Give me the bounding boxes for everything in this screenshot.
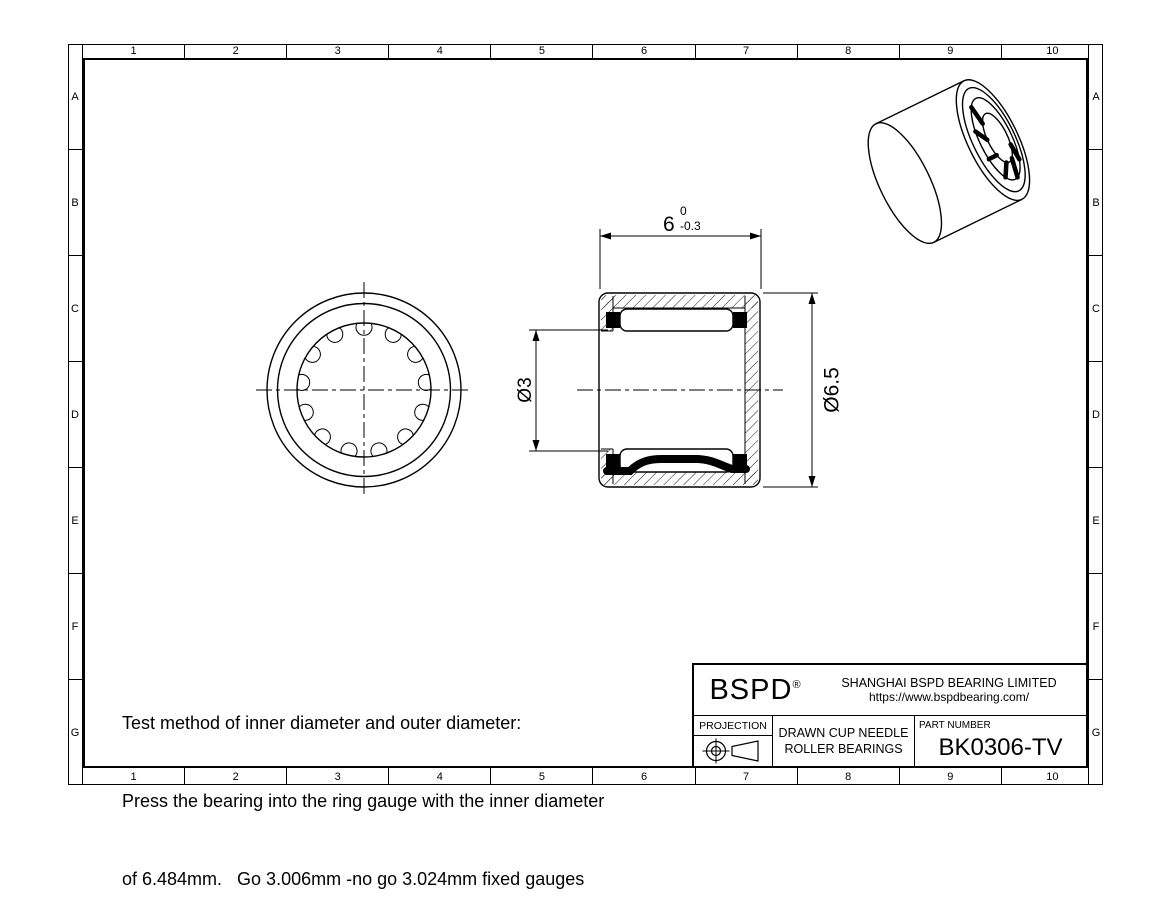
product-line: DRAWN CUP NEEDLE [779,725,909,741]
outer-diameter-value: Ø6.5 [821,367,844,413]
note-line: of 6.484mm. Go 3.006mm -no go 3.024mm fi… [122,866,697,892]
arrowhead [750,233,761,240]
note-line: Press the bearing into the ring gauge wi… [122,788,697,814]
front-view [256,282,472,498]
dimension-width: 6 0 -0.3 [600,204,761,289]
company-logo: BSPD® [694,674,816,707]
iso-open-face [942,70,1045,211]
arrowhead [600,233,611,240]
section-view [577,293,783,487]
arrowhead [809,476,816,487]
iso-roller [989,155,997,159]
product-line: ROLLER BEARINGS [784,741,902,757]
projection-label: PROJECTION [694,716,772,736]
iso-needle-rollers [965,98,1026,185]
isometric-view [853,70,1044,254]
projection-cell: PROJECTION [694,716,773,766]
title-block-lower-row: PROJECTION DRAWN CUP NEEDLE ROLLER BEARI… [694,716,1086,766]
top-cage-left [606,312,620,328]
part-number-value: BK0306-TV [915,734,1086,762]
top-needle-roller [620,309,733,331]
dimension-bore: Ø3 [515,330,608,451]
iso-body-bottom [934,199,1022,242]
registered-mark: ® [792,679,800,691]
company-name: SHANGHAI BSPD BEARING LIMITED [816,676,1082,690]
width-tolerance-upper: 0 [680,204,687,218]
product-description-cell: DRAWN CUP NEEDLE ROLLER BEARINGS [773,716,915,766]
bottom-cage-profile [607,459,746,471]
iso-body-top [876,81,964,124]
arrowhead [533,330,540,341]
iso-closed-end [853,113,956,254]
part-number-label: PART NUMBER [919,720,991,731]
iso-face-rim [950,79,1038,200]
first-angle-projection-icon [694,736,772,766]
width-value: 6 [663,213,675,236]
arrowhead [809,293,816,304]
top-cage-right [733,312,747,328]
projection-symbol-icon [702,738,764,764]
arrowhead [533,440,540,451]
title-block: BSPD® SHANGHAI BSPD BEARING LIMITED http… [692,663,1088,768]
bore-value: Ø3 [515,377,536,402]
company-website: https://www.bspdbearing.com/ [816,690,1082,704]
note-line: Test method of inner diameter and outer … [122,710,697,736]
hatch-top-wall [602,295,758,308]
part-number-cell: PART NUMBER BK0306-TV [915,716,1086,766]
test-method-notes: Test method of inner diameter and outer … [122,658,697,918]
title-block-header-row: BSPD® SHANGHAI BSPD BEARING LIMITED http… [694,665,1086,716]
company-info: SHANGHAI BSPD BEARING LIMITED https://ww… [816,676,1086,704]
width-tolerance-lower: -0.3 [680,219,701,233]
